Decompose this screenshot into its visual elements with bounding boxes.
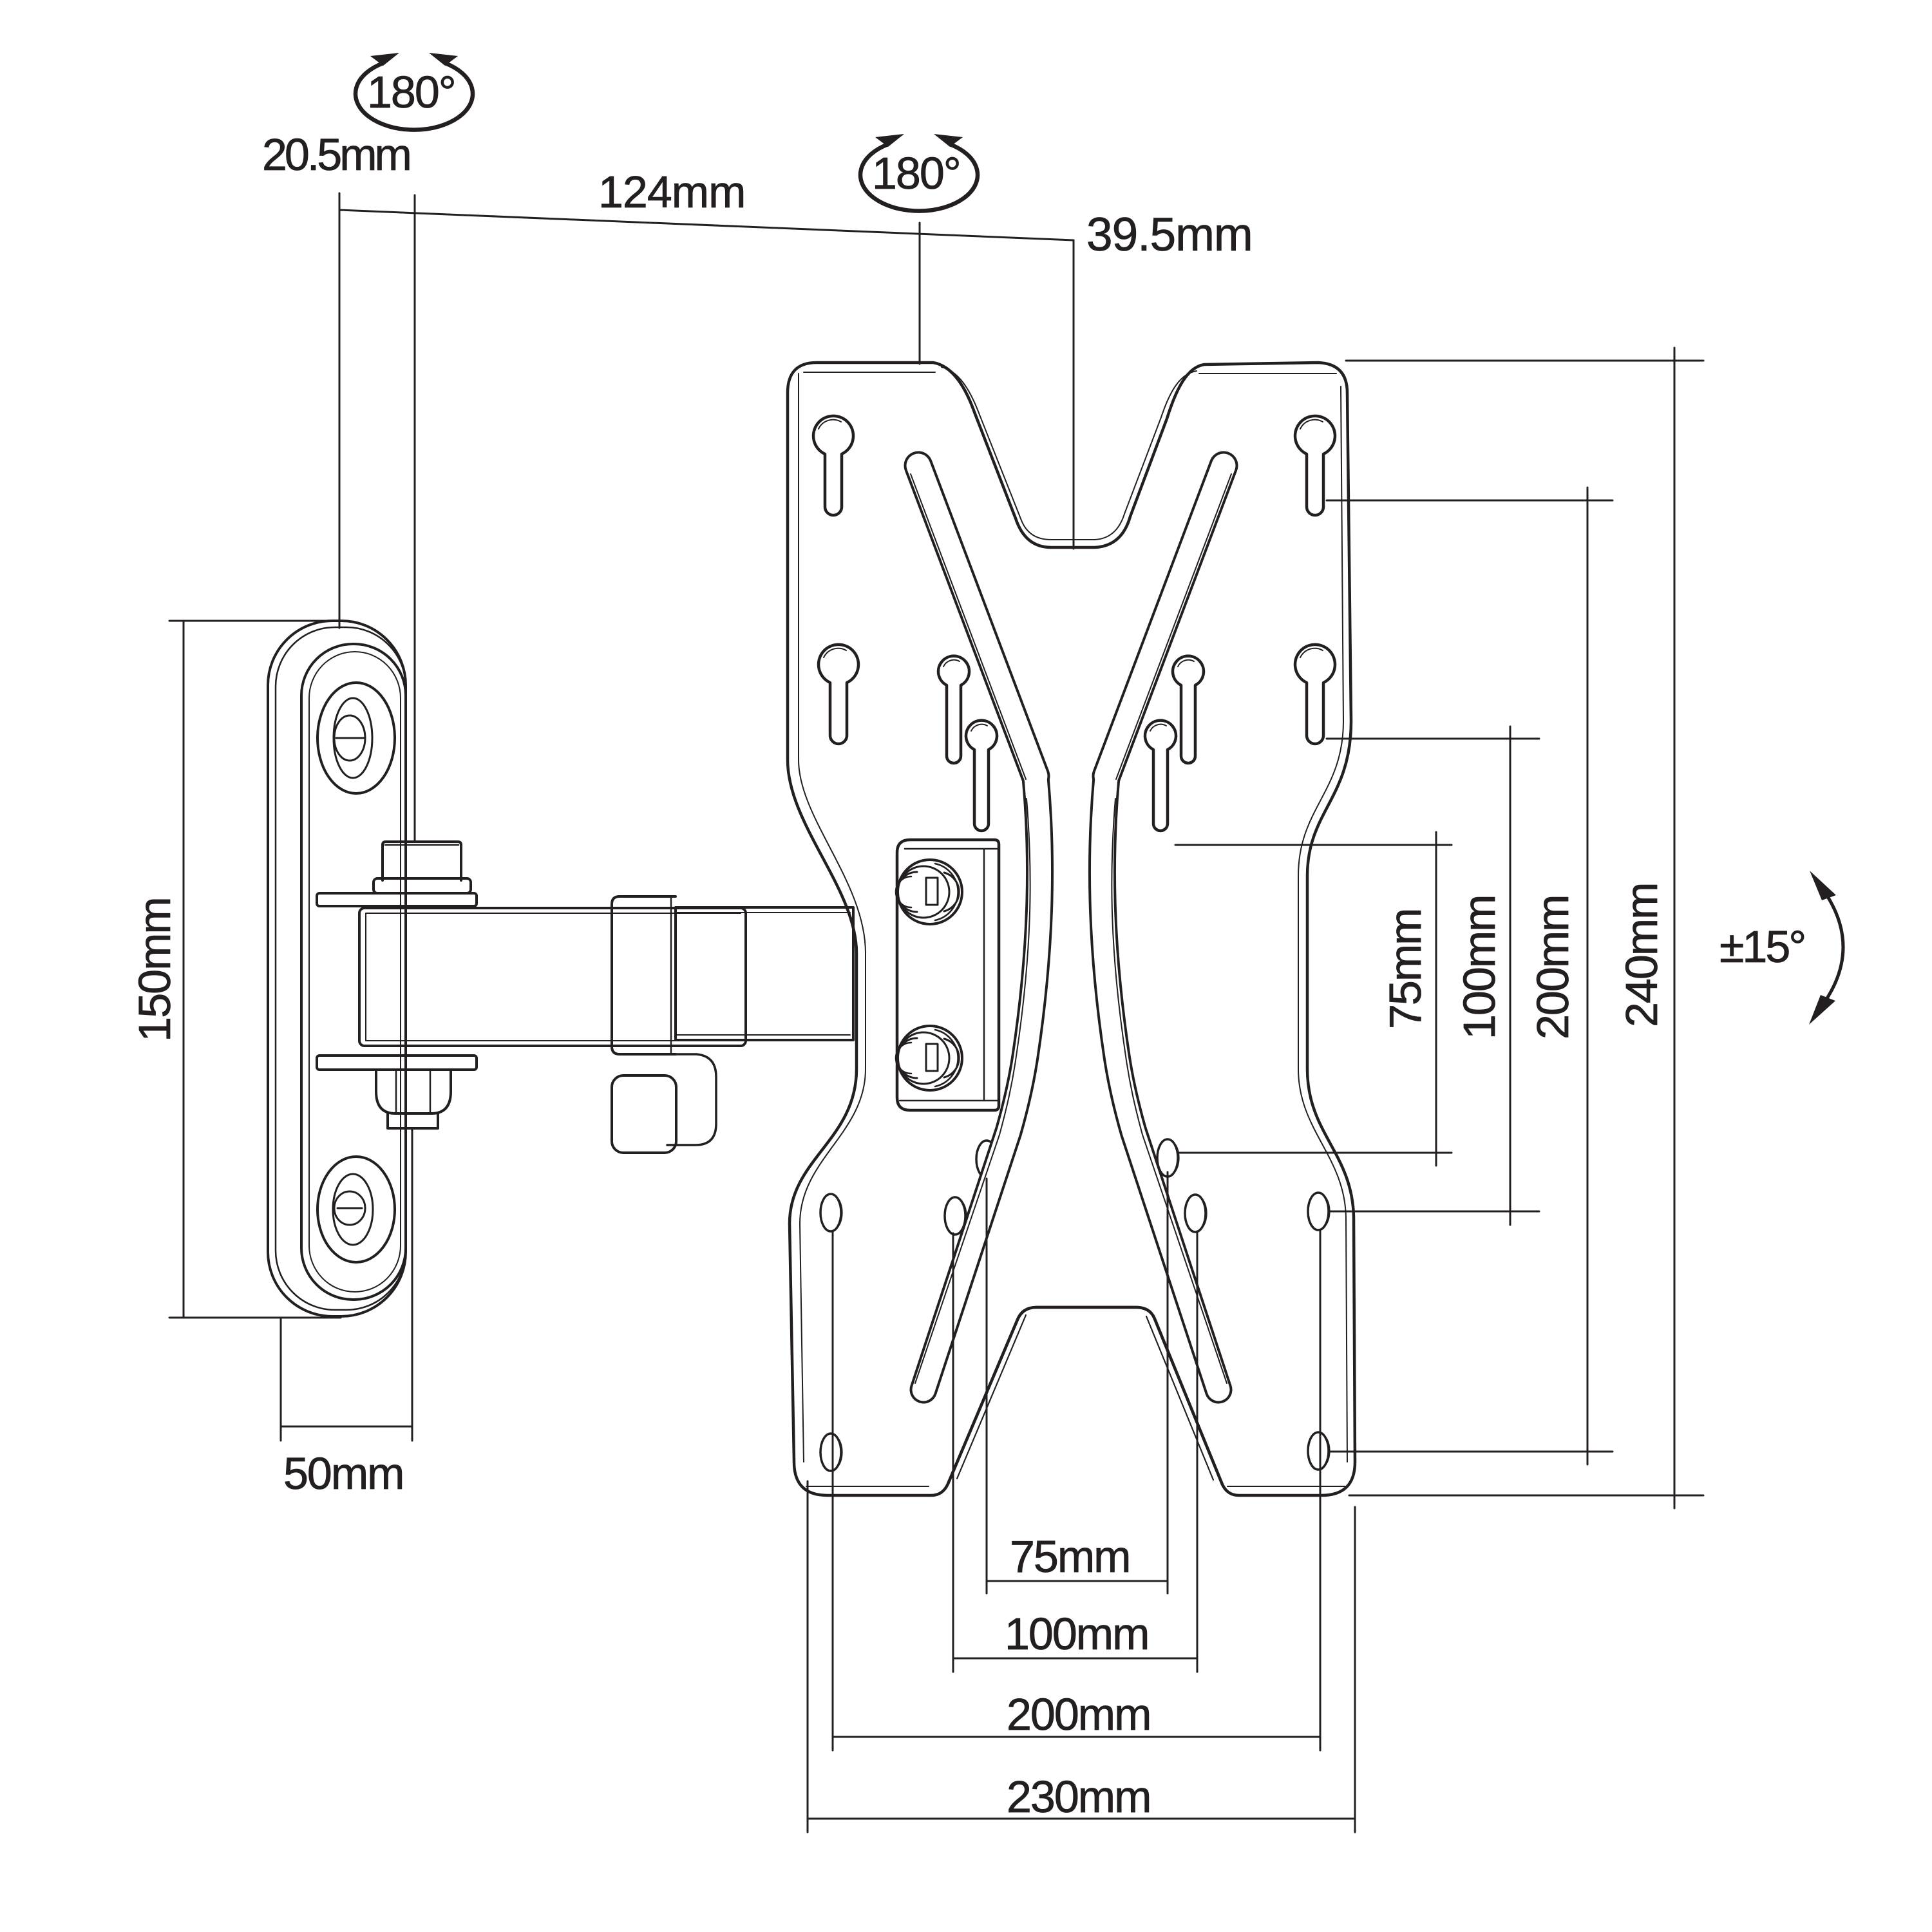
svg-text:±15°: ±15° [1719,922,1804,972]
svg-text:200mm: 200mm [1528,896,1578,1039]
svg-text:230mm: 230mm [1007,1772,1150,1822]
svg-text:200mm: 200mm [1007,1689,1150,1739]
svg-text:75mm: 75mm [1380,909,1430,1029]
svg-text:240mm: 240mm [1616,884,1667,1027]
svg-text:75mm: 75mm [1010,1531,1130,1582]
svg-text:180°: 180° [872,148,960,198]
svg-text:124mm: 124mm [598,167,745,217]
svg-text:39.5mm: 39.5mm [1086,209,1253,261]
svg-text:100mm: 100mm [1454,896,1504,1039]
svg-text:100mm: 100mm [1005,1609,1148,1659]
svg-text:20.5mm: 20.5mm [262,129,410,180]
svg-text:150mm: 150mm [129,898,180,1041]
svg-text:50mm: 50mm [283,1448,403,1499]
svg-text:180°: 180° [367,67,455,117]
